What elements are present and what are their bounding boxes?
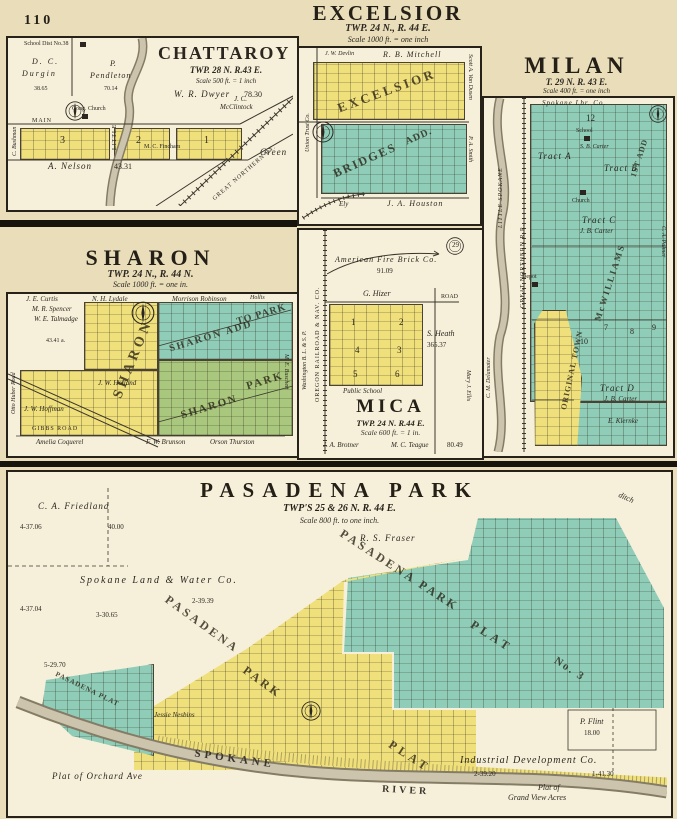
block-number: 4 (355, 346, 360, 355)
label-owner: J. W. Holland (98, 380, 136, 387)
tract-label: Tract C (582, 216, 616, 225)
compass-icon (648, 104, 668, 124)
label-acreage: 4-37.04 (20, 606, 42, 613)
label-owner: Spokane Land & Water Co. (80, 576, 238, 587)
label-owner: M. C. Teague (391, 442, 428, 449)
town-title: MILAN (482, 54, 671, 78)
scale-note: Scale 500 ft. = 1 inch (180, 78, 272, 85)
label-plat-note: Grand View Acres (508, 794, 566, 802)
label-acreage: 70.14 (104, 86, 118, 92)
label-owner: J. A. Houston (387, 200, 443, 208)
scale-note: Scale 1000 ft. = one in. (6, 281, 295, 289)
label-creek: LITTLE (112, 124, 118, 150)
label-owner: R. B. Mitchell (383, 51, 441, 59)
township-line: TWP. 24 N., R. 44 E. (296, 24, 480, 35)
label-acreage: 1-41.30 (592, 771, 614, 778)
compass-icon (300, 700, 322, 722)
label-owner: Ely (339, 201, 348, 208)
label-road: Otto Huber Road (11, 372, 17, 414)
town-title: CHATTAROY (158, 44, 290, 63)
label-owner: American Fire Brick Co. (335, 256, 437, 264)
label-owner: J. W. Devlin (325, 51, 354, 57)
page-number: 110 (24, 14, 53, 29)
label-owner: Union Trust Co. (305, 113, 311, 152)
label-owner: G. Hizer (363, 290, 391, 298)
label-owner: D. C. (32, 58, 59, 66)
block-number: 3 (397, 346, 402, 355)
compass-icon (311, 120, 335, 144)
township-line: TWP. 28 N. R.43 E. (176, 66, 276, 75)
scale-note: Scale 400 ft. = one inch (482, 88, 671, 95)
plat-block (329, 304, 423, 386)
label-owner: S. B. Carter (580, 144, 609, 150)
scale-note: Scale 600 ft. = 1 in. (299, 428, 482, 437)
label-railroad: OREGON RAILROAD & NAV. CO. (315, 287, 321, 402)
label-owner: Hollis (250, 295, 265, 301)
label-owner: P. (110, 60, 116, 68)
scale-note: Scale 1000 ft. = one inch (296, 36, 480, 44)
label-acreage: 91.09 (377, 268, 393, 275)
label-acreage: 40.00 (108, 524, 124, 531)
block-number: 10 (580, 338, 588, 346)
label-owner: J. A. Brotner (323, 442, 359, 449)
seal-number: 29 (452, 242, 459, 249)
section-divider (0, 461, 677, 467)
label-church: Church (572, 198, 590, 204)
label-river: RIVER (382, 785, 430, 798)
plat-block (321, 124, 467, 194)
label-owner: J. B. Carter (580, 228, 613, 235)
label-acreage: 3-30.65 (96, 612, 118, 619)
block-number: 5 (353, 370, 358, 379)
label-road: GIBBS ROAD (32, 426, 78, 432)
label-owner: M. C. Fincham (144, 144, 180, 150)
block-number: 2 (399, 318, 404, 327)
label-acreage: 5-29.70 (44, 662, 66, 669)
label-owner: M. E. Buschett (283, 354, 289, 389)
block-number: 2 (136, 136, 141, 147)
label-owner: J. W. Hoffman (24, 406, 64, 413)
label-plat-note: Plat of (538, 784, 560, 792)
label-acreage: 18.00 (584, 730, 600, 737)
label-owner: C. A. Friedland (38, 502, 109, 511)
section-number: 12 (586, 114, 595, 123)
label-acreage: 4-37.06 (20, 524, 42, 531)
block-number: 9 (652, 324, 656, 332)
block-number: 3 (60, 136, 65, 147)
building-icon (80, 42, 86, 47)
block-number: 1 (351, 318, 356, 327)
label-acreage: 43.31 (114, 163, 132, 171)
label-river: LITTLE SPOKANE (498, 167, 504, 228)
label-road: ROAD (441, 294, 458, 300)
label-owner: Pendleton (90, 72, 131, 80)
label-owner: Washington B. L. & S. P. (302, 331, 308, 390)
block-number: 1 (204, 136, 209, 147)
label-owner: W. E. Talmadge (34, 316, 78, 323)
town-title: EXCELSIOR (296, 2, 480, 24)
chattaroy-map-panel: CHATTAROY TWP. 28 N. R.43 E. Scale 500 f… (6, 36, 299, 212)
label-plat-note: Plat of Orchard Ave (52, 772, 143, 781)
label-owner: P. Flint (580, 718, 603, 726)
block-number: 7 (604, 324, 608, 332)
atlas-page: 110 CHATTAROY TWP. 28 N. R.43 E. Scale 5… (0, 0, 677, 819)
label-owner: M. R. Spencer (32, 306, 72, 313)
label-owner: C. Bushman (12, 127, 18, 156)
label-owner: Amelia Coquerel (36, 439, 83, 446)
pasadena-map-panel: PASADENA PARK TWP'S 25 & 26 N. R. 44 E. … (6, 470, 673, 818)
label-owner: N. H. Lydale (92, 296, 128, 303)
label-owner: Mary J. Ellis (465, 370, 471, 401)
label-acreage: 80.49 (447, 442, 463, 449)
town-title: SHARON (6, 246, 295, 269)
label-owner: E. Klernke (608, 418, 638, 425)
compass-icon (64, 100, 86, 122)
label-school: Public School (343, 388, 382, 395)
label-owner: C. A. Palmer (660, 226, 666, 257)
label-owner: A. Nelson (48, 162, 92, 171)
label-owner: Spokane Lbr. Co. (542, 100, 606, 107)
label-owner: S. Heath (427, 330, 455, 338)
block-number: 8 (630, 328, 634, 336)
label-owner: Morrison Robinson (172, 296, 227, 303)
label-owner: J. B. Carter (604, 396, 637, 403)
label-owner: Industrial Development Co. (460, 756, 597, 767)
label-school: School (576, 128, 593, 134)
label-acreage: 43.41 a. (46, 338, 65, 344)
township-line: TWP. 24 N., R. 44 N. (6, 270, 295, 281)
sharon-map-panel: J. E. Curtis N. H. Lydale Morrison Robin… (6, 292, 299, 458)
township-line: TWP. 24 N. R.44 E. (299, 418, 482, 428)
town-title: PASADENA PARK (8, 478, 671, 503)
label-school-district: School Dist No.38 (24, 41, 69, 47)
label-railroad: GREAT NORTHERN R.R. (520, 223, 526, 308)
label-owner: McClintock (220, 104, 253, 111)
label-acreage: 365.37 (427, 342, 446, 349)
label-owner: Orson Thurston (210, 439, 255, 446)
label-owner: W. R. Dwyer (174, 90, 230, 99)
label-owner: J. E. Curtis (26, 296, 58, 303)
label-acreage: 38.65 (34, 86, 48, 92)
label-owner: Durgin (22, 70, 57, 78)
tract-label: Tract A (538, 152, 572, 161)
label-acreage: 2-39.39 (192, 598, 214, 605)
building-icon (532, 282, 538, 287)
block-number: 6 (395, 370, 400, 379)
label-owner: C. M. Delamater (486, 357, 492, 398)
label-owner: Scott A. Van Dusen (467, 54, 473, 100)
mica-map-panel: 29 American Fire Brick Co. 91.09 G. Hize… (297, 228, 484, 460)
building-icon (580, 190, 586, 195)
town-title: MICA (299, 396, 482, 418)
label-street: MAIN (32, 118, 52, 124)
excelsior-map-panel: J. W. Devlin R. B. Mitchell EXCELSIOR BR… (297, 46, 482, 226)
section-divider (0, 220, 297, 227)
label-owner: P. A. Smith (467, 136, 473, 162)
label-owner: Jessie Nesbins (154, 712, 195, 719)
plat-block (20, 128, 110, 160)
building-icon (584, 136, 590, 141)
tract-label: Tract D (600, 384, 635, 393)
plat-block (176, 128, 242, 160)
milan-map-panel: Spokane Lbr. Co. 12 School S. B. Carter … (482, 96, 675, 458)
label-acreage: 2-39.20 (474, 771, 496, 778)
label-owner: F. W. Brunson (146, 439, 185, 446)
